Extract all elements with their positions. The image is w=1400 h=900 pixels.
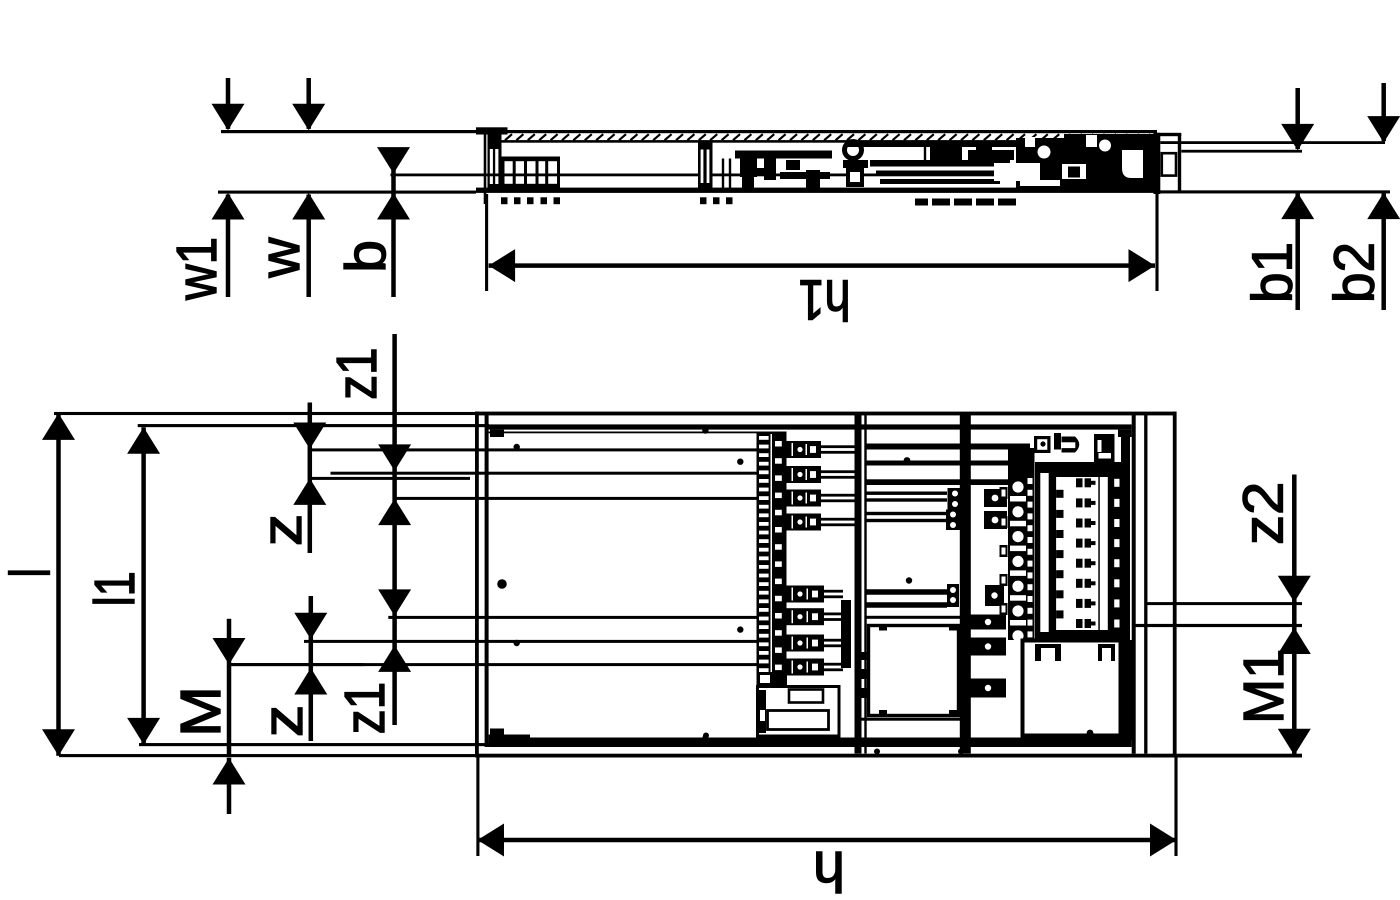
- svg-text:l1: l1: [82, 571, 146, 606]
- svg-text:b2: b2: [1321, 242, 1385, 303]
- svg-text:M1: M1: [1232, 649, 1296, 724]
- svg-text:b1: b1: [1239, 242, 1303, 303]
- svg-text:z1: z1: [326, 347, 389, 399]
- svg-text:z: z: [250, 514, 313, 547]
- svg-text:z1: z1: [334, 682, 397, 734]
- svg-text:b: b: [335, 240, 398, 273]
- svg-text:h: h: [813, 839, 845, 900]
- svg-text:M: M: [169, 686, 233, 737]
- svg-text:z: z: [251, 705, 314, 738]
- svg-text:w1: w1: [166, 237, 229, 301]
- svg-text:z2: z2: [1232, 482, 1295, 546]
- svg-text:h1: h1: [798, 268, 850, 331]
- svg-text:w: w: [247, 237, 311, 278]
- svg-text:l: l: [0, 568, 62, 577]
